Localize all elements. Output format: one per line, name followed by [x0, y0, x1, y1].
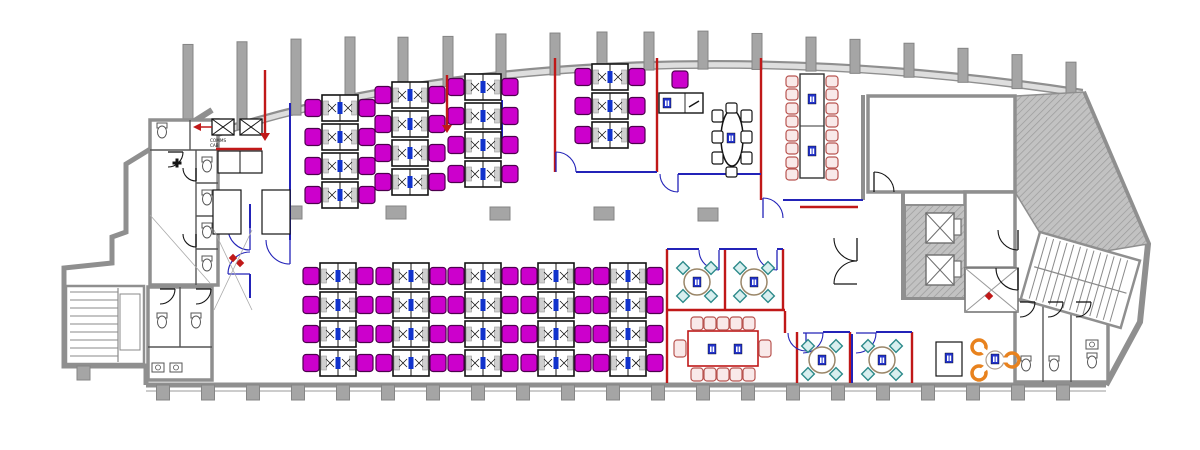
floor-plan-svg: lifts COMMS CAB: [0, 0, 1200, 450]
task-chair: [575, 127, 591, 144]
red-marker: [236, 259, 244, 267]
task-chair: [647, 297, 663, 314]
task-chair: [575, 326, 591, 343]
task-chair: [430, 355, 446, 372]
task-chair: [359, 100, 375, 117]
task-chair: [303, 326, 319, 343]
desk-bank: [448, 74, 518, 187]
lift-core: lifts: [905, 205, 965, 298]
task-chair: [376, 355, 392, 372]
task-chair: [521, 326, 537, 343]
task-chair: [502, 79, 518, 96]
task-chair: [502, 137, 518, 154]
task-chair: [448, 79, 464, 96]
task-chair: [305, 187, 321, 204]
task-chair: [521, 268, 537, 285]
desk-bank: [575, 64, 645, 148]
task-chair: [429, 87, 445, 104]
task-chair: [375, 174, 391, 191]
meeting-room-table: [677, 262, 718, 303]
furniture-label-tag: [991, 354, 999, 364]
task-chair: [429, 116, 445, 133]
task-chair: [375, 145, 391, 162]
office-corner-desk: [659, 71, 703, 113]
desk-bank: [593, 263, 663, 376]
furniture-label-tag: [693, 277, 701, 287]
task-chair: [629, 98, 645, 115]
task-chair: [357, 326, 373, 343]
task-chair: [359, 129, 375, 146]
task-chair: [448, 326, 464, 343]
desk-bank: [376, 263, 446, 376]
task-chair: [672, 71, 688, 88]
comms-cab-label: COMMS CAB: [210, 138, 226, 148]
desk-bank: [303, 263, 373, 376]
task-chair: [575, 355, 591, 372]
comms-cab-label-line2: CAB: [210, 143, 219, 148]
task-chair: [448, 268, 464, 285]
task-chair: [430, 326, 446, 343]
task-chair: [629, 127, 645, 144]
task-chair: [502, 108, 518, 125]
task-chair: [359, 187, 375, 204]
task-chair: [303, 268, 319, 285]
furniture-label-tag: [808, 94, 816, 104]
task-chair: [575, 98, 591, 115]
task-chair: [375, 87, 391, 104]
task-chair: [376, 268, 392, 285]
task-chair: [305, 100, 321, 117]
task-chair: [593, 268, 609, 285]
task-chair: [448, 297, 464, 314]
task-chair: [429, 145, 445, 162]
task-chair: [305, 129, 321, 146]
task-chair: [303, 355, 319, 372]
stair-left: [66, 286, 144, 364]
desk-bank: [305, 95, 375, 208]
task-chair: [502, 297, 518, 314]
meeting-room-table: [862, 340, 903, 381]
task-chair: [521, 355, 537, 372]
furniture-label-tag: [818, 355, 826, 365]
red-marker: [229, 254, 237, 262]
furniture-label-tag: [663, 98, 671, 108]
furniture-label-tag: [727, 133, 735, 143]
winder-stair: [965, 268, 1018, 312]
furniture-label-tag: [708, 344, 716, 354]
oval-meeting-table: [712, 103, 752, 177]
task-chair: [305, 158, 321, 175]
task-chair: [575, 268, 591, 285]
task-chair: [575, 69, 591, 86]
task-chair: [448, 108, 464, 125]
task-chair: [575, 297, 591, 314]
task-chair: [647, 326, 663, 343]
task-chair: [359, 158, 375, 175]
task-chair: [448, 355, 464, 372]
boardroom-top: [786, 74, 838, 180]
task-chair: [502, 166, 518, 183]
floor-plan-drawing: lifts: [64, 31, 1148, 400]
task-chair: [593, 326, 609, 343]
meeting-room-table: [734, 262, 775, 303]
task-chair: [375, 116, 391, 133]
task-chair: [376, 297, 392, 314]
meeting-room-table: [802, 340, 843, 381]
task-chair: [448, 137, 464, 154]
task-chair: [521, 297, 537, 314]
task-chair: [376, 326, 392, 343]
task-chair: [593, 297, 609, 314]
task-chair: [502, 326, 518, 343]
task-chair: [429, 174, 445, 191]
task-chair: [647, 268, 663, 285]
task-chair: [502, 355, 518, 372]
furniture-label-tag: [945, 353, 953, 363]
task-chair: [357, 355, 373, 372]
desk-bank: [521, 263, 591, 376]
task-chair: [357, 268, 373, 285]
orange-breakout-table: [972, 340, 1019, 380]
task-chair: [593, 355, 609, 372]
task-chair: [647, 355, 663, 372]
task-chair: [629, 69, 645, 86]
boardroom-bottom: [674, 317, 771, 381]
furniture-label-tag: [878, 355, 886, 365]
task-chair: [303, 297, 319, 314]
floor-plan-page: lifts COMMS CAB: [0, 0, 1200, 450]
task-chair: [448, 166, 464, 183]
furniture-label-tag: [734, 344, 742, 354]
task-chair: [357, 297, 373, 314]
desk-bank: [448, 263, 518, 376]
task-chair: [430, 268, 446, 285]
furniture-label-tag: [808, 146, 816, 156]
furniture-label-tag: [750, 277, 758, 287]
desk-bank: [375, 82, 445, 195]
task-chair: [430, 297, 446, 314]
task-chair: [502, 268, 518, 285]
